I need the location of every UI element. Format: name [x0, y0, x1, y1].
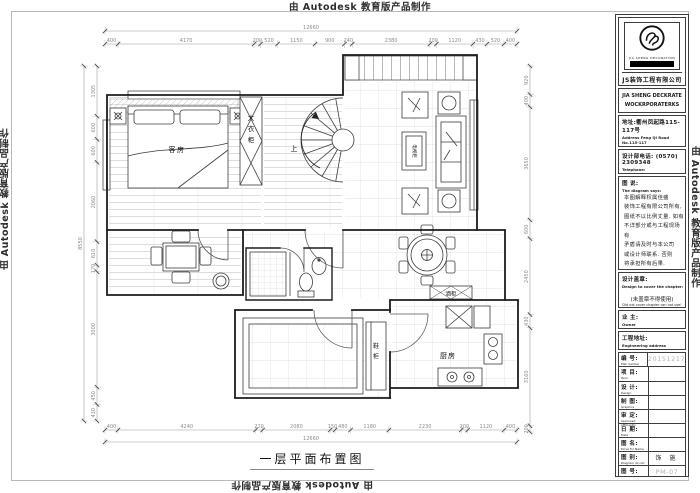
dimension-value: 200 [524, 424, 530, 434]
dimension-value: 2450 [524, 270, 530, 283]
dimension-value: 2080 [290, 424, 303, 430]
dimension-value: 170 [91, 264, 97, 274]
phone-en: Telephone: [619, 166, 685, 173]
row-label-cn: 审 定: [621, 411, 648, 419]
floor-plan-canvas: 客房 大衣柜 上 电视柜 酒柜 鞋柜 厨房 126604004170200520… [0, 0, 700, 492]
dimension-value: 900 [325, 38, 335, 44]
pillow [180, 110, 220, 124]
dimension-value: 600 [91, 123, 97, 133]
corridor-floor [245, 232, 332, 248]
dimension-value: 2380 [385, 38, 398, 44]
row-label-en: Graphics [621, 405, 648, 409]
dimension-value: 12660 [303, 436, 319, 442]
dimension-value: 240 [344, 38, 354, 44]
dimension-value: 1120 [448, 38, 461, 44]
note-line: 或设计师联系. 否则 [619, 251, 685, 260]
chair [399, 237, 408, 249]
table-row: 图 别:Diagram do not 饰 施 [619, 452, 685, 466]
dimension-value: 430 [475, 38, 485, 44]
notes-title-cn: 图 说: [619, 177, 685, 187]
dimension-value: 150 [328, 424, 338, 430]
notes-title-en: The diagram says: [619, 187, 685, 194]
site-en: Engineering address [619, 342, 685, 349]
guest-room-label: 客房 [169, 145, 186, 154]
dimension-value: 220 [254, 424, 264, 430]
dimension-value: 1150 [290, 38, 303, 44]
row-label-cn: 图 别: [621, 453, 648, 461]
dimension-value: 12660 [303, 25, 319, 31]
table-row: 制 图:Graphics [619, 396, 685, 410]
row-label-en: Design [621, 391, 648, 395]
railing-post-right [463, 56, 477, 80]
dimension-value: 400 [506, 424, 516, 430]
drawing-title: 一层平面布置图 [250, 450, 374, 470]
seal-warning-cn: (未盖章不得使用) [619, 295, 685, 303]
dimension-value: 1305 [91, 85, 97, 98]
row-label-en: Diagram number [621, 475, 648, 477]
dimension-value: 3650 [524, 157, 530, 170]
pillow [134, 110, 174, 124]
shower-area [250, 252, 286, 296]
chair [421, 276, 433, 285]
seal-section: 设计盖章: Design to cover the chapter: (未盖章不… [618, 272, 686, 308]
phone-cn: 设计部电话: (0570) 2309348 [619, 150, 685, 166]
dimension-value: 400 [506, 38, 516, 44]
phone-section: 设计部电话: (0570) 2309348 Telephone: [618, 149, 686, 174]
dimension-value: 600 [91, 146, 97, 156]
chair [172, 272, 190, 283]
balcony-railing [345, 56, 477, 80]
entry-tile-mat [243, 318, 363, 394]
stool [213, 273, 229, 289]
row-label-cn: 制 图: [621, 397, 648, 405]
dimension-value: 200 [460, 424, 470, 430]
address-section: 地址:衢州凤起路115-117号 Address Feng Qi Road No… [618, 115, 686, 147]
row-value: 饰 施 [649, 452, 685, 465]
side-table-top [438, 92, 460, 114]
table-row: 图 号:Diagram number PM-07 [619, 466, 685, 477]
chair [446, 237, 455, 249]
table-row: 设 计:Design [619, 382, 685, 396]
note-line: 图纸不以比例丈量. 如有 [619, 213, 685, 222]
stair-up-label: 上 [291, 144, 298, 153]
row-label-en: Item [621, 376, 648, 380]
dimension-value: 2060 [91, 196, 97, 209]
dimension-value: 430 [91, 408, 97, 418]
dimension-value: 480 [338, 424, 348, 430]
tv-cabinet-label: 电视柜 [411, 144, 418, 158]
chair [172, 231, 190, 242]
owner-en: Owner [619, 321, 685, 328]
dimension-value: 2230 [419, 424, 432, 430]
logo-banner [630, 61, 674, 67]
note-line: 矛盾请及时与本公司 [619, 241, 685, 250]
railing-post-left [345, 56, 359, 80]
table-row: 审 定:Approved efficiently [619, 410, 685, 424]
dimension-value: 3160 [524, 370, 530, 383]
address-en: Address Feng Qi Road No.115-117 [619, 134, 685, 146]
owner-cn: 业 主: [619, 311, 685, 321]
dimension-value: 600 [524, 225, 530, 235]
dimension-value: 1180 [363, 424, 376, 430]
notes-section: 图 说: The diagram says: 本图解释权属佳盛 装饰工程有限公司… [618, 176, 686, 270]
row-label-cn: 图 名: [621, 439, 648, 447]
dimension-value: 450 [91, 391, 97, 401]
note-line: 不详部分或与工程现场有 [619, 222, 685, 241]
drawing-sheet: { "watermark": { "text": "由 Autodesk 教育版… [0, 0, 700, 492]
nightstand-left [110, 108, 126, 124]
armchair-bottom [402, 188, 428, 214]
logo-section: JIA SHENG DECORATION JS装饰工程有限公司 [618, 17, 686, 86]
row-label-cn: 编 号: [621, 354, 647, 362]
title-block: JIA SHENG DECORATION JS装饰工程有限公司 JIA SHEN… [615, 14, 689, 477]
bathroom-fixtures [250, 252, 326, 297]
company-name-en: JIA SHENG DECKRATE WOCKRPORATERKS [618, 88, 686, 113]
dimension-value: 4170 [180, 38, 193, 44]
seal-cn: 设计盖章: [619, 273, 685, 283]
dimension-value: 400 [107, 38, 117, 44]
toilet [300, 273, 313, 291]
company-name-cn: JS装饰工程有限公司 [622, 72, 682, 84]
armchair-top [402, 92, 428, 118]
chair [151, 247, 162, 265]
row-value [649, 367, 685, 380]
row-value: 20151217 [648, 353, 685, 366]
dimension-value: 610 [91, 249, 97, 259]
row-value: PM-07 [649, 466, 685, 477]
logo-frame: JIA SHENG DECORATION [624, 22, 680, 70]
row-value [649, 410, 685, 423]
dimension-value: 8550 [78, 237, 84, 250]
dimension-value: 920 [524, 75, 530, 85]
wardrobe-label: 大衣柜 [248, 113, 255, 144]
row-label-en: Diagram do not [621, 461, 648, 465]
sofa [436, 116, 466, 188]
table-row: 日 期:Date [619, 424, 685, 438]
company-en-line2: WOCKRPORATERKS [619, 101, 685, 110]
note-line: 本图解释权属佳盛 [619, 194, 685, 203]
dimension-value: 4240 [180, 424, 193, 430]
dimension-value: 430 [524, 316, 530, 326]
info-table: 编 号:Plat number 20151217 项 目:Item 设 计:De… [618, 352, 686, 477]
logo-caption: JIA SHENG DECORATION [625, 56, 679, 60]
side-table-bottom [438, 190, 460, 212]
dimension-value: 3000 [91, 323, 97, 336]
note-line: 将承担所有后果. [619, 260, 685, 269]
row-label-cn: 日 期: [621, 425, 648, 433]
row-label-cn: 项 目: [621, 368, 648, 376]
chair [446, 261, 455, 273]
stove [438, 368, 482, 386]
fridge [446, 306, 490, 328]
row-value [649, 396, 685, 409]
dimension-value: 1120 [479, 424, 492, 430]
dimension-value: 200 [428, 38, 438, 44]
table-row: 项 目:Item [619, 367, 685, 381]
dimension-value: 520 [491, 38, 501, 44]
note-line: 装饰工程有限公司所有, [619, 203, 685, 212]
site-cn: 工程地址: [619, 332, 685, 342]
table-row: 编 号:Plat number 20151217 [619, 353, 685, 367]
owner-section: 业 主: Owner [618, 310, 686, 329]
seal-warning-en: Did not cover chapter can not use! [619, 303, 685, 307]
company-logo-icon [638, 24, 666, 52]
seal-en: Design to cover the chapter: [619, 283, 685, 290]
site-section: 工程地址: Engineering address [618, 331, 686, 350]
kitchen-sink [484, 334, 502, 364]
row-label-en: Date [621, 433, 648, 437]
wine-cabinet-label: 酒柜 [445, 290, 457, 298]
row-label-cn: 图 号: [621, 467, 648, 475]
row-value [649, 424, 685, 437]
dimension-value: 400 [107, 424, 117, 430]
row-value [649, 438, 685, 451]
chair [399, 261, 408, 273]
row-value [649, 382, 685, 395]
address-cn: 地址:衢州凤起路115-117号 [619, 116, 685, 134]
dimension-value: 520 [264, 38, 274, 44]
dimension-value: 400 [524, 96, 530, 106]
company-en-line1: JIA SHENG DECKRATE [619, 92, 685, 101]
kitchen-label: 厨房 [440, 351, 456, 360]
row-label-en: Plat number [621, 362, 647, 366]
row-label-en: Drive for Name [621, 447, 648, 451]
dimension-value: 200 [253, 38, 263, 44]
table-row: 图 名:Drive for Name [619, 438, 685, 452]
row-label-cn: 设 计: [621, 383, 648, 391]
